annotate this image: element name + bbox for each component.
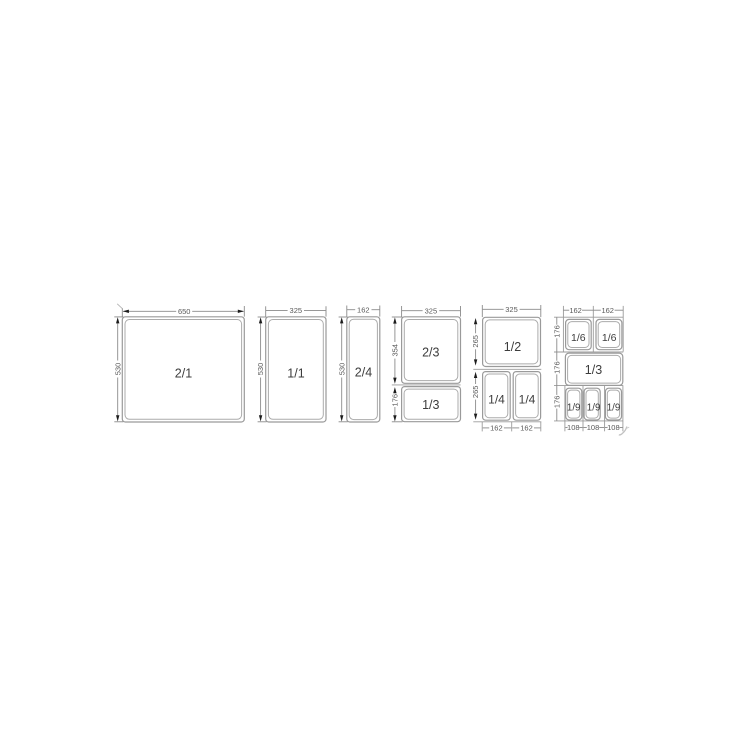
svg-text:162: 162 (601, 306, 614, 315)
svg-text:354: 354 (391, 344, 400, 357)
svg-text:108: 108 (607, 423, 620, 432)
svg-text:1/4: 1/4 (519, 392, 536, 406)
svg-text:162: 162 (490, 424, 503, 433)
svg-text:2/3: 2/3 (422, 346, 439, 360)
svg-text:325: 325 (425, 306, 438, 315)
svg-text:176: 176 (552, 396, 561, 409)
svg-text:108: 108 (587, 423, 600, 432)
svg-text:162: 162 (520, 424, 533, 433)
svg-text:176: 176 (390, 394, 399, 407)
svg-text:1/2: 1/2 (504, 340, 521, 354)
svg-text:1/9: 1/9 (607, 402, 621, 413)
svg-text:1/3: 1/3 (585, 363, 602, 377)
svg-text:1/9: 1/9 (587, 402, 601, 413)
svg-text:1/3: 1/3 (422, 398, 439, 412)
svg-text:325: 325 (290, 306, 303, 315)
svg-text:530: 530 (256, 363, 265, 376)
svg-text:1/1: 1/1 (287, 367, 304, 381)
svg-text:1/9: 1/9 (567, 402, 581, 413)
svg-text:1/4: 1/4 (488, 392, 505, 406)
svg-text:176: 176 (552, 361, 561, 374)
svg-text:108: 108 (567, 423, 580, 432)
svg-text:265: 265 (471, 386, 480, 399)
svg-text:2/1: 2/1 (175, 367, 192, 381)
svg-text:650: 650 (178, 307, 191, 316)
svg-text:1/6: 1/6 (602, 332, 617, 344)
svg-text:162: 162 (357, 305, 370, 314)
svg-text:176: 176 (552, 325, 561, 338)
svg-text:2/4: 2/4 (355, 366, 372, 380)
svg-text:325: 325 (505, 305, 518, 314)
svg-text:530: 530 (337, 363, 346, 376)
svg-text:530: 530 (113, 363, 122, 376)
svg-text:265: 265 (471, 335, 480, 348)
svg-text:1/6: 1/6 (571, 332, 586, 344)
svg-text:162: 162 (569, 306, 582, 315)
